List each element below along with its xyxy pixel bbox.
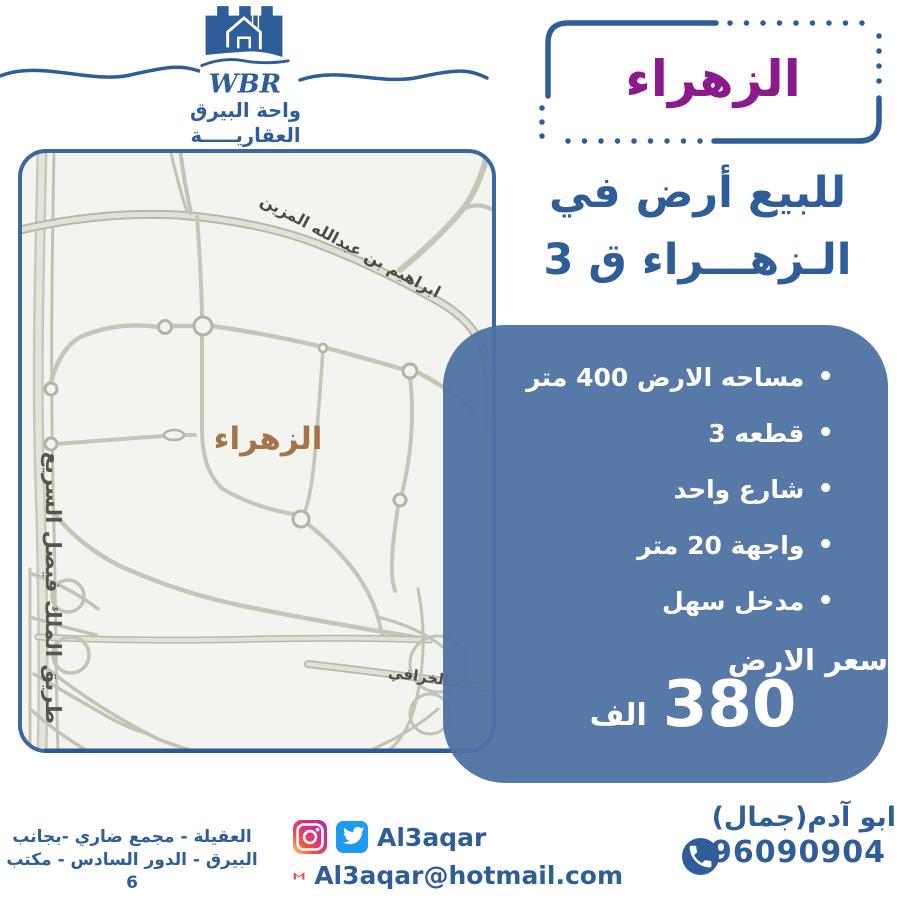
address-line2: البيرق - الدور السادس - مكتب 6 [6,849,258,895]
list-item: مدخل سهل [463,573,834,629]
list-item: قطعه 3 [463,405,834,461]
headline-line2: الـزهـــراء ق 3 [505,227,890,294]
phone-icon [682,838,719,875]
map-road-label-left: طريق الملك فيصل السريع [41,452,65,724]
price-value: 380 [663,673,797,737]
headline: للبيع أرض في الـزهـــراء ق 3 [505,160,890,293]
brand-name-line1: واحة البيرق [168,98,323,123]
social-handle[interactable]: Al3aqar [377,823,486,852]
area-title: الزهراء [538,16,888,148]
map: طريق الملك فيصل السريع ابراهيم بن عبدالل… [18,149,496,753]
address-line1: العقيلة - مجمع ضاري -بجانب [6,826,258,849]
brand-name-line2: العقاريـــــة [168,123,323,148]
area-title-box: الزهراء [538,16,888,148]
wbr-castle-logo: WBR [196,2,292,110]
instagram-icon[interactable] [293,820,327,854]
left-wave-decoration [0,56,200,88]
gmail-icon[interactable] [293,862,305,889]
office-address: العقيلة - مجمع ضاري -بجانب البيرق - الدو… [6,826,258,895]
headline-line1: للبيع أرض في [505,160,890,227]
right-wave-decoration [298,62,490,90]
social-contact: Al3aqar Al3aqar@hotmail.com [293,818,623,894]
wbr-script-text: WBR [209,69,282,99]
price-unit: الف [590,698,647,733]
price: الف 380 [498,673,888,737]
details-panel: مساحه الارض 400 متر قطعه 3 شارع واحد واج… [443,325,888,783]
list-item: مساحه الارض 400 متر [463,349,834,405]
map-area-label: الزهراء [214,421,323,457]
email-address[interactable]: Al3aqar@hotmail.com [314,861,623,890]
feature-list: مساحه الارض 400 متر قطعه 3 شارع واحد واج… [443,325,888,629]
castle-icon [206,6,283,57]
phone-contact: ابو آدم(جمال) 96090904 [666,802,896,870]
list-item: واجهة 20 متر [463,517,834,573]
agent-name: ابو آدم(جمال) [666,802,896,833]
brand-name: واحة البيرق العقاريـــــة [168,98,323,149]
twitter-icon[interactable] [336,821,368,853]
list-item: شارع واحد [463,461,834,517]
